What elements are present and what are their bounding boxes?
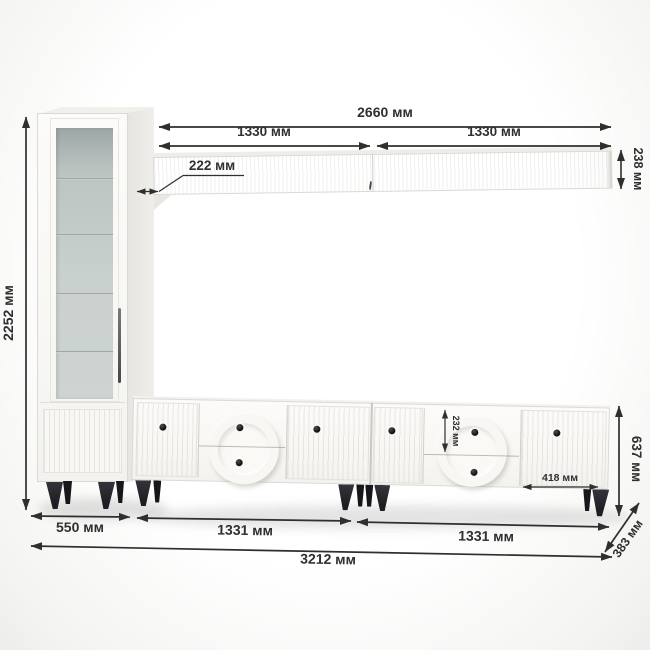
- dim-stand-height: 637 мм: [619, 406, 644, 516]
- dim-door-width: 418 мм: [523, 472, 598, 487]
- dimension-overlay: 2252 мм 2660 мм 1330 мм 1330 мм 238 мм 2…: [0, 0, 650, 650]
- dim-stand-right-width: 1331 мм: [357, 522, 609, 544]
- dim-cabinet-height-label: 2252 мм: [0, 285, 16, 341]
- dim-shelf-left-width-label: 1330 мм: [237, 124, 291, 139]
- dim-shelf-total-width-label: 2660 мм: [357, 104, 413, 120]
- dim-stand-left-width: 1331 мм: [137, 518, 351, 538]
- furniture-dimension-diagram: 2252 мм 2660 мм 1330 мм 1330 мм 238 мм 2…: [0, 0, 650, 650]
- dim-shelf-height-label: 238 мм: [631, 148, 645, 191]
- dim-stand-depth: 383 мм: [605, 503, 646, 560]
- dim-stand-right-width-label: 1331 мм: [458, 528, 514, 545]
- dim-cabinet-width-label: 550 мм: [56, 519, 104, 535]
- dim-drawer-height: 232 мм: [445, 410, 461, 452]
- dim-shelf-height: 238 мм: [621, 148, 645, 191]
- dim-total-width: 3212 мм: [31, 546, 612, 567]
- dim-door-width-label: 418 мм: [542, 472, 578, 484]
- dim-shelf-right-width-label: 1330 мм: [467, 124, 521, 139]
- dim-shelf-depth-label: 222 мм: [189, 158, 235, 173]
- dim-cabinet-width: 550 мм: [31, 516, 130, 535]
- dim-stand-height-label: 637 мм: [629, 436, 644, 482]
- dim-total-width-label: 3212 мм: [300, 551, 356, 568]
- dim-drawer-height-label: 232 мм: [451, 416, 461, 447]
- dim-shelf-total-width: 2660 мм: [159, 104, 611, 127]
- dim-cabinet-height: 2252 мм: [0, 117, 26, 510]
- dim-shelf-depth: 222 мм: [137, 158, 244, 192]
- dim-stand-left-width-label: 1331 мм: [217, 522, 273, 539]
